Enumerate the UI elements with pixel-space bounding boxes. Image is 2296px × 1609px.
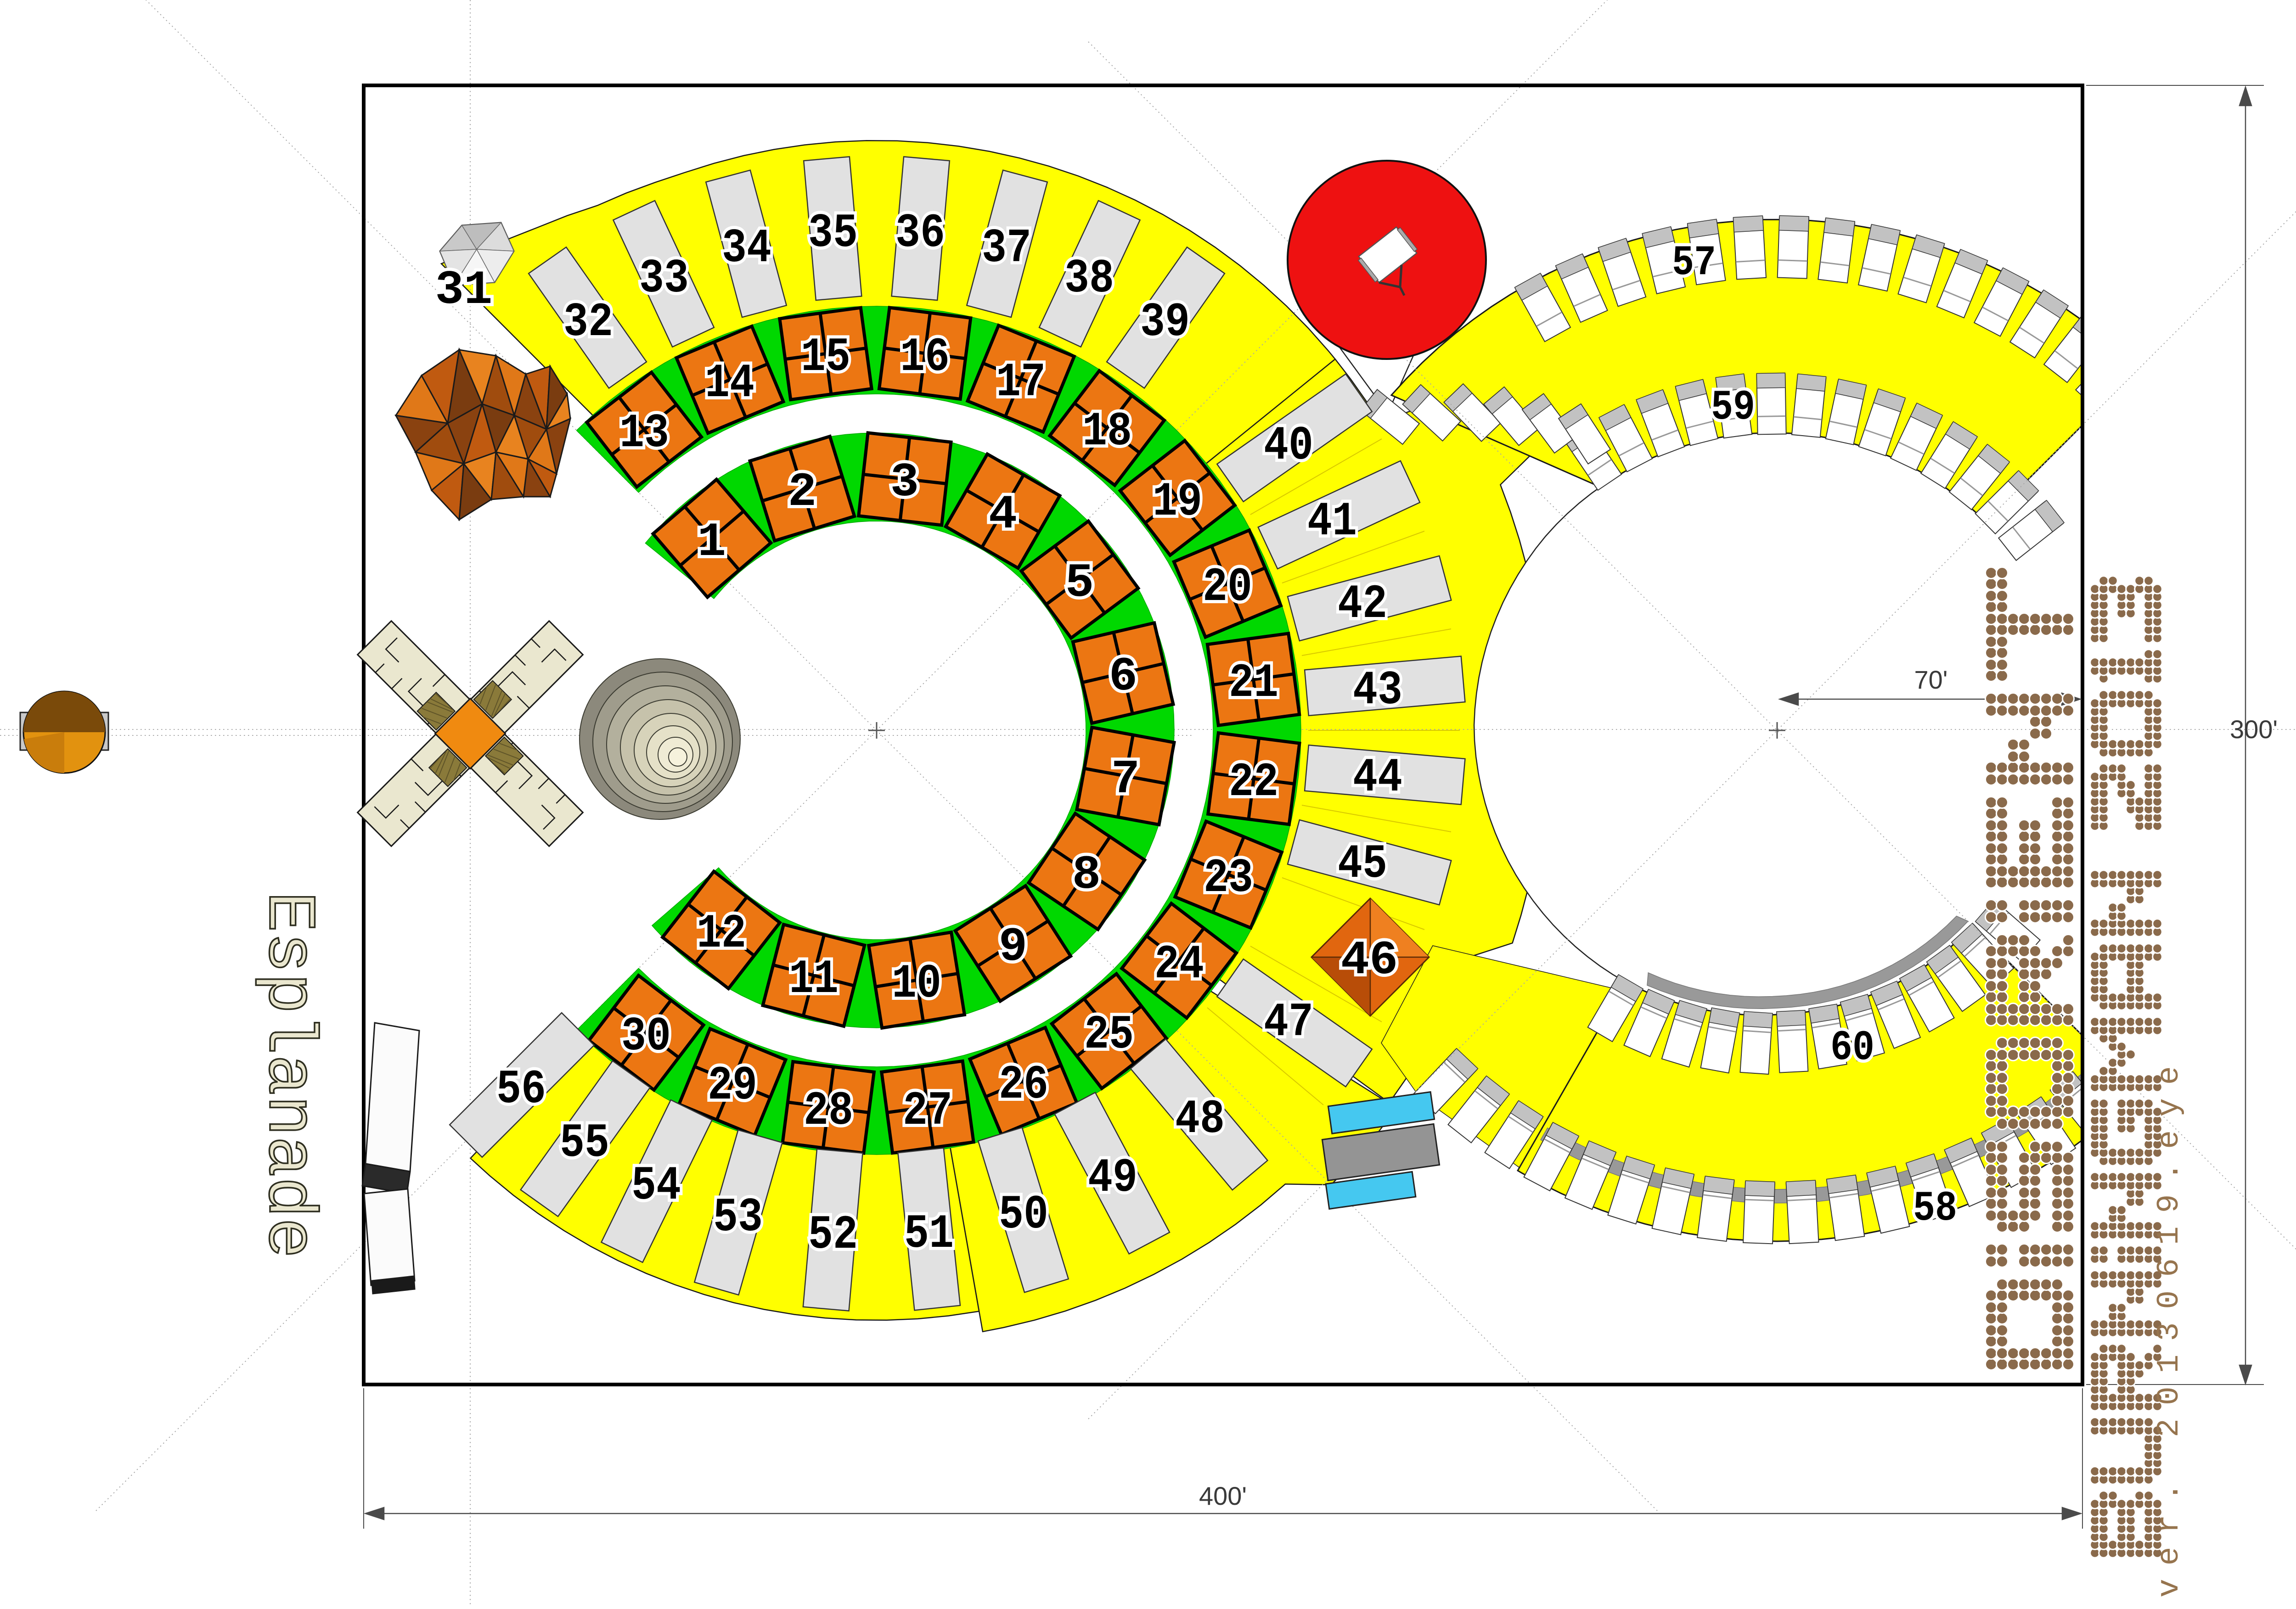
svg-text:38: 38	[1064, 252, 1114, 306]
svg-text:3: 3	[890, 456, 919, 510]
svg-text:47: 47	[1264, 996, 1313, 1050]
svg-text:7: 7	[1111, 753, 1140, 807]
svg-text:24: 24	[1154, 938, 1204, 992]
svg-text:59: 59	[1711, 383, 1755, 432]
svg-text:33: 33	[639, 252, 689, 306]
svg-text:21: 21	[1229, 656, 1278, 711]
svg-text:28: 28	[804, 1084, 853, 1138]
svg-text:19: 19	[1153, 475, 1202, 529]
svg-text:32: 32	[563, 296, 613, 350]
svg-text:60: 60	[1830, 1024, 1874, 1072]
svg-text:4: 4	[989, 488, 1017, 542]
svg-text:20: 20	[1203, 561, 1252, 615]
svg-text:34: 34	[722, 222, 771, 276]
svg-text:400': 400'	[1199, 1481, 1247, 1510]
svg-text:44: 44	[1353, 751, 1402, 805]
svg-text:6: 6	[1109, 650, 1137, 704]
svg-text:22: 22	[1229, 756, 1278, 810]
svg-text:52: 52	[808, 1208, 858, 1262]
svg-text:57: 57	[1672, 239, 1716, 287]
svg-text:5: 5	[1065, 556, 1094, 611]
svg-text:18: 18	[1082, 405, 1132, 459]
svg-text:48: 48	[1175, 1093, 1225, 1147]
svg-text:10: 10	[892, 957, 941, 1011]
svg-text:56: 56	[496, 1063, 546, 1117]
svg-text:50: 50	[999, 1188, 1048, 1242]
svg-text:9: 9	[999, 920, 1027, 975]
svg-text:39: 39	[1140, 296, 1190, 350]
svg-text:26: 26	[999, 1058, 1048, 1112]
svg-text:45: 45	[1338, 837, 1387, 891]
svg-text:54: 54	[631, 1159, 681, 1213]
svg-text:1: 1	[698, 516, 726, 570]
svg-text:55: 55	[560, 1116, 609, 1171]
svg-text:11: 11	[789, 953, 838, 1007]
svg-text:27: 27	[903, 1084, 952, 1138]
svg-text:37: 37	[982, 222, 1031, 276]
svg-text:53: 53	[713, 1191, 763, 1245]
svg-text:ver. 20130619.eye: ver. 20130619.eye	[2152, 1053, 2187, 1598]
svg-text:17: 17	[996, 356, 1046, 410]
svg-text:14: 14	[705, 357, 754, 411]
svg-text:49: 49	[1088, 1151, 1137, 1205]
svg-text:2: 2	[788, 465, 816, 520]
svg-text:70': 70'	[1914, 665, 1948, 694]
svg-text:29: 29	[708, 1059, 757, 1113]
svg-text:42: 42	[1338, 577, 1387, 632]
svg-text:35: 35	[808, 207, 858, 261]
svg-text:51: 51	[904, 1207, 954, 1261]
svg-text:13: 13	[619, 407, 669, 461]
svg-text:16: 16	[900, 331, 950, 385]
svg-text:46: 46	[1341, 934, 1398, 988]
svg-text:15: 15	[801, 331, 850, 385]
svg-text:58: 58	[1913, 1184, 1957, 1233]
svg-text:12: 12	[697, 907, 746, 961]
svg-text:300': 300'	[2230, 715, 2278, 744]
svg-text:36: 36	[895, 207, 945, 261]
svg-text:25: 25	[1084, 1008, 1134, 1062]
svg-text:43: 43	[1353, 664, 1402, 718]
svg-text:31: 31	[435, 263, 493, 318]
svg-text:8: 8	[1072, 848, 1101, 903]
svg-text:23: 23	[1204, 852, 1253, 906]
svg-text:Esplanade: Esplanade	[249, 891, 326, 1258]
svg-text:41: 41	[1307, 495, 1357, 549]
svg-text:30: 30	[621, 1010, 671, 1064]
svg-text:40: 40	[1264, 419, 1313, 473]
